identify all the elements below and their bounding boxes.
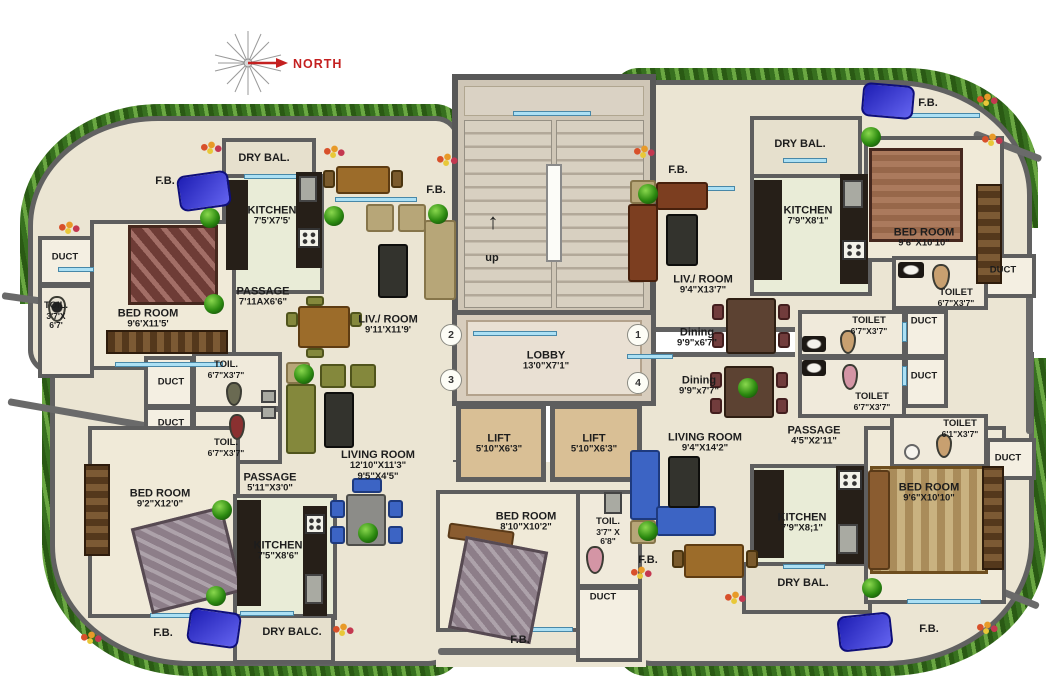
label-u3-bedroom: BED ROOM9'2"X12'0" <box>130 488 191 511</box>
u2-lounger <box>176 170 233 213</box>
u3-stove-icon <box>305 514 325 534</box>
label-c-duct: DUCT <box>590 593 616 604</box>
label-u2-kitchen: KITCHEN7'5'X7'5' <box>248 205 297 228</box>
label-u2-fb-left: F.B. <box>155 175 175 187</box>
label-u3-dry-balcony: DRY BALC. <box>262 626 321 638</box>
label-u3-toilet-2: TOIL.6'7"X3'7" <box>208 438 245 458</box>
label-u2-passage: PASSAGE7'11AX6'6" <box>237 286 290 309</box>
u3-armchair <box>350 364 376 388</box>
u4-fb-chair <box>672 550 684 568</box>
flat-marker-1: 1 <box>627 324 649 346</box>
label-u4-dry-balcony: DRY BAL. <box>777 577 828 589</box>
u2-stove-icon <box>298 228 320 248</box>
u2-dining-table <box>298 306 350 348</box>
window <box>907 599 981 604</box>
u4-fb-chair <box>746 550 758 568</box>
u3-dining-chair <box>388 500 403 518</box>
label-u4-duct: DUCT <box>995 454 1021 465</box>
u1-sofa <box>628 204 658 282</box>
u4-dining-chair <box>710 398 722 414</box>
label-u2-dry-balcony: DRY BAL. <box>238 152 289 164</box>
window <box>244 174 302 179</box>
plant-icon <box>738 378 758 398</box>
label-mr-toilet-1: TOILET6'7"X3'7" <box>851 316 888 336</box>
u2-sink-icon <box>299 176 317 202</box>
flower-icon <box>436 153 460 167</box>
plant-icon <box>862 578 882 598</box>
u3-dining-chair <box>388 526 403 544</box>
label-u4-fb-left: F.B. <box>638 554 658 566</box>
u2-fb-table <box>336 166 390 194</box>
label-u1-living-room: LIV./ ROOM9'4"X13'7" <box>673 274 733 297</box>
label-u3-fb: F.B. <box>153 627 173 639</box>
label-u2-fb-right: F.B. <box>426 184 446 196</box>
u3-lounger <box>186 607 243 650</box>
label-up: up <box>485 252 498 264</box>
label-u2-toilet: TOIL.3'7'X6'7' <box>44 301 68 331</box>
window <box>902 366 907 386</box>
room-u3-dry-balcony <box>233 614 335 664</box>
label-lift-1: LIFT5'10"X6'3" <box>476 433 522 456</box>
u2-tv-unit <box>378 244 408 298</box>
u4-sofa <box>656 506 716 536</box>
u4-sink-icon <box>838 524 858 554</box>
u3-sink-icon <box>305 574 323 604</box>
u1-washbasin-icon <box>898 262 924 278</box>
flower-icon <box>976 621 1000 635</box>
plant-icon <box>861 127 881 147</box>
floor-plan: NORTH ↑ up LOBBY13'0"X7'1" LIFT5'10"X6'3… <box>0 0 1056 700</box>
plant-icon <box>358 523 378 543</box>
u3-tv-unit <box>324 392 354 448</box>
u2-fb-chair <box>323 170 335 188</box>
room-u2-toilet <box>38 284 94 378</box>
window <box>473 331 557 336</box>
label-lift-2: LIFT5'10"X6'3" <box>571 433 617 456</box>
u1-sofa <box>656 182 708 210</box>
label-u1-fb-right: F.B. <box>918 97 938 109</box>
u2-dining-chair <box>286 312 298 327</box>
u4-lounger <box>836 611 893 652</box>
window <box>627 354 673 359</box>
u2-bed <box>128 225 218 305</box>
label-u1-fb-left: F.B. <box>668 164 688 176</box>
u1-stove-icon <box>842 240 866 260</box>
mr-washbasin-icon <box>802 360 826 376</box>
stair-flight-left <box>464 120 552 308</box>
flower-icon <box>323 145 347 159</box>
label-lobby: LOBBY13'0"X7'1" <box>523 350 569 373</box>
outer-wall-center-bottom <box>438 648 586 655</box>
c-bed <box>448 536 548 644</box>
flower-icon <box>58 221 82 235</box>
window <box>783 564 825 569</box>
label-u2-living-room: LIV./ ROOM9'11'X11'9' <box>358 314 418 337</box>
u4-wardrobe <box>982 466 1004 570</box>
u2-armchair <box>398 204 426 232</box>
u3-dining-chair <box>330 526 345 544</box>
plant-icon <box>206 586 226 606</box>
u4-stove-icon <box>838 470 862 490</box>
window <box>58 267 94 272</box>
label-c-fb: F.B. <box>510 634 530 646</box>
u2-dining-chair <box>306 296 324 306</box>
flower-icon <box>332 623 356 637</box>
u2-fb-chair <box>391 170 403 188</box>
label-u1-duct: DUCT <box>990 266 1016 277</box>
u1-tv-unit <box>666 214 698 266</box>
flower-icon <box>981 133 1005 147</box>
label-mr-toilet-2: TOILET6'7"X3'7" <box>854 392 891 412</box>
u4-dining-chair <box>776 372 788 388</box>
plant-icon <box>638 521 658 541</box>
label-u4-kitchen: KITCHEN7'9"X8;1" <box>778 512 827 535</box>
window <box>902 322 907 342</box>
flower-icon <box>724 591 748 605</box>
plant-icon <box>212 500 232 520</box>
flower-icon <box>630 566 654 580</box>
label-u4-dining: Dining9'9"x7'7" <box>679 375 719 398</box>
u3-washbasin-icon <box>261 390 276 403</box>
u3-armchair <box>320 364 346 388</box>
u3-wardrobe <box>84 464 110 556</box>
flower-icon <box>633 145 657 159</box>
label-c-bedroom: BED ROOM8'10"X10'2" <box>496 511 557 534</box>
label-mr-duct-2: DUCT <box>911 372 937 383</box>
window <box>513 111 591 116</box>
u1-kitchen-counter <box>754 180 782 280</box>
up-arrow-icon: ↑ <box>488 209 499 235</box>
label-u3-passage: PASSAGE5'11"X3'0" <box>244 472 297 495</box>
u4-tv-unit <box>668 456 700 508</box>
label-u3-kitchen: KITCHEN7'5"X8'6" <box>254 540 303 563</box>
label-u1-dining: Dining9'9"x6'7" <box>677 327 717 350</box>
plant-icon <box>324 206 344 226</box>
label-u4-living-room: LIVING ROOM9'4"X14'2" <box>668 432 742 455</box>
u1-dining-chair <box>778 332 790 348</box>
label-u3-toilet-1: TOIL.6'7"X3'7" <box>208 360 245 380</box>
flat-marker-2: 2 <box>440 324 462 346</box>
plant-icon <box>638 184 658 204</box>
plant-icon <box>428 204 448 224</box>
u2-dining-chair <box>306 348 324 358</box>
mr-washbasin-icon <box>802 336 826 352</box>
u2-wardrobe <box>106 330 228 354</box>
flower-icon <box>80 631 104 645</box>
outer-wall-right <box>1026 294 1033 434</box>
label-u1-kitchen: KITCHEN7'9"X8'1" <box>784 205 833 228</box>
stair-divider <box>546 164 562 262</box>
u3-dining-chair <box>330 500 345 518</box>
window <box>783 158 827 163</box>
flat-marker-3: 3 <box>440 369 462 391</box>
label-u4-fb-bottom: F.B. <box>919 623 939 635</box>
label-u3-duct-1: DUCT <box>158 378 184 389</box>
label-c-toilet: TOIL.3'7" X6'8" <box>596 517 620 547</box>
flower-icon <box>976 93 1000 107</box>
u1-dining-table <box>726 298 776 354</box>
label-u2-duct: DUCT <box>52 253 78 264</box>
u4-fb-table <box>684 544 744 578</box>
u4-dining-chair <box>776 398 788 414</box>
u3-washbasin-icon <box>261 406 276 419</box>
label-u2-bedroom: BED ROOM9'6'X11'5' <box>118 308 179 331</box>
label-u4-bedroom: BED ROOM9'6"X10'10" <box>899 482 960 505</box>
u1-dining-chair <box>712 304 724 320</box>
north-label: NORTH <box>293 57 342 71</box>
label-mr-duct-1: DUCT <box>911 317 937 328</box>
plant-icon <box>200 208 220 228</box>
u1-sink-icon <box>843 180 863 208</box>
u3-sofa <box>286 384 316 454</box>
u4-washbasin-icon <box>904 444 920 460</box>
flower-icon <box>200 141 224 155</box>
u4-bed-headboard <box>868 470 890 570</box>
window <box>240 611 294 616</box>
plant-icon <box>294 364 314 384</box>
flat-marker-4: 4 <box>627 372 649 394</box>
label-u1-dry-balcony: DRY BAL. <box>774 138 825 150</box>
window <box>335 197 417 202</box>
u2-sofa <box>424 220 456 300</box>
label-u3-duct-2: DUCT <box>158 419 184 430</box>
label-u1-bedroom: BED ROOM9'6"X10'10" <box>894 227 955 250</box>
u1-dining-chair <box>778 304 790 320</box>
label-u4-toilet: TOILET6'1"X3'7" <box>942 419 979 439</box>
u2-armchair <box>366 204 394 232</box>
plant-icon <box>204 294 224 314</box>
label-u3-living-room: LIVING ROOM12'10"X11'3"9'5"X4'5" <box>341 449 415 483</box>
c-cabinet-icon <box>604 492 622 514</box>
u1-lounger <box>861 82 916 120</box>
label-u1-toilet: TOILET6'7"X3'7" <box>938 288 975 308</box>
label-u4-passage: PASSAGE4'5"X2'11" <box>788 425 841 448</box>
